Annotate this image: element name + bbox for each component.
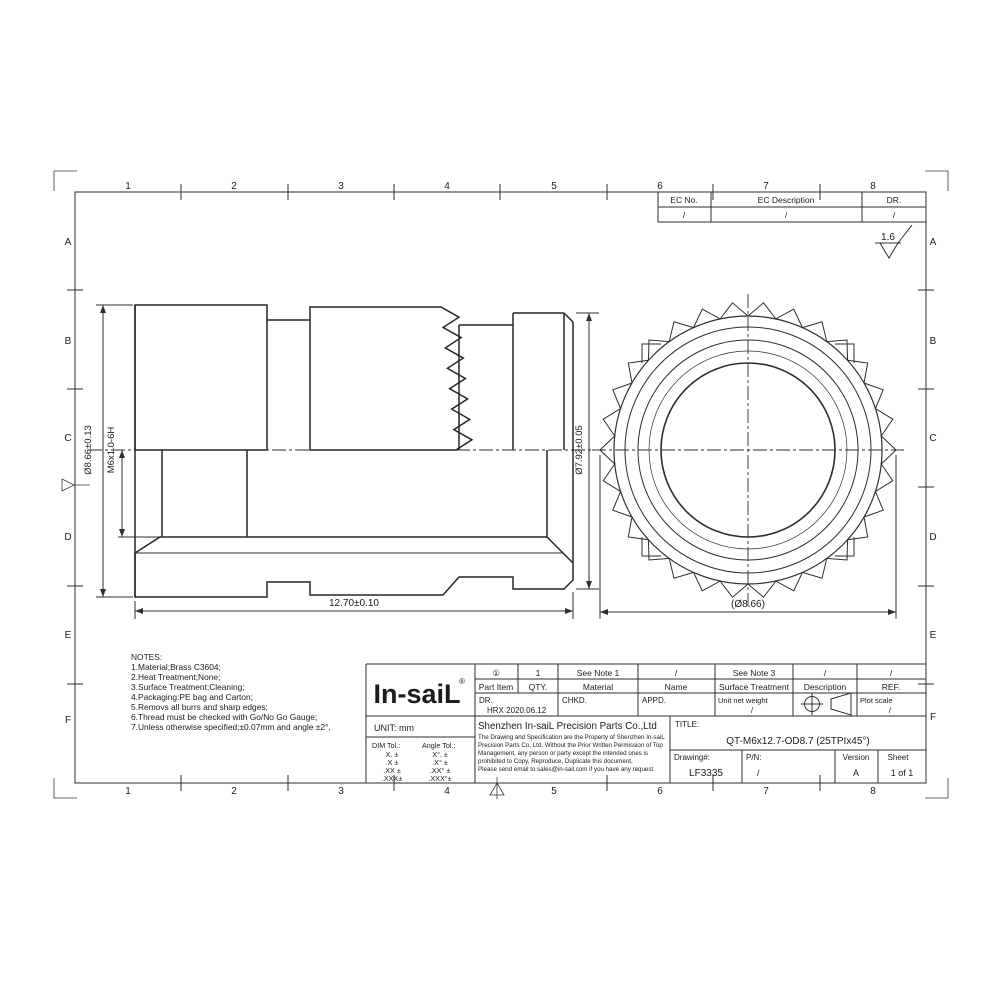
ref-value: / [890,668,893,678]
row-label: C [64,433,71,444]
crosshair-icon [801,693,823,715]
row-label: D [64,532,71,543]
col-label: 6 [657,786,663,797]
note-line: 2.Heat Treatment;None; [131,672,220,682]
cone-frustum-icon [831,693,851,715]
col-label: 4 [444,786,450,797]
ec-description-value: / [785,210,788,220]
note-line: 7.Unless otherwise specified;±0.07mm and… [131,722,331,732]
col-label: 3 [338,181,344,192]
dr-value: HRX 2020.06.12 [487,706,547,715]
name-value: / [675,668,678,678]
weight-value: / [751,706,754,715]
note-line: 5.Removs all burrs and sharp edges; [131,702,268,712]
dim-length: 12.70±0.10 [135,592,573,619]
col-label: 1 [125,181,131,192]
col-label: 8 [870,181,876,192]
dim-tol-label: DIM Tol.: [372,741,400,750]
surface-treatment-label: Surface Treatment [719,682,790,692]
knurl-block [310,307,472,450]
row-label: E [65,630,72,641]
company-name: Shenzhen In-saiL Precision Parts Co.,Ltd [478,721,657,732]
note-line: 3.Surface Treatment;Cleaning; [131,682,245,692]
plot-scale-value: / [889,706,892,715]
col-label: 6 [657,181,663,192]
version-label: Version [843,753,870,762]
ec-no-header: EC No. [670,195,697,205]
front-view: (Ø8.66) [592,294,904,619]
col-label: 4 [444,181,450,192]
col-label: 7 [763,181,769,192]
projection-symbols [801,693,851,715]
tolerance-table: DIM Tol.: Angle Tol.: X. ± .X ± .XX ± .X… [372,741,455,783]
row-label: B [65,336,72,347]
note-line: 6.Thread must be checked with Go/No Go G… [131,712,317,722]
row-label: D [929,532,936,543]
ec-description-header: EC Description [758,195,815,205]
note-line: 4.Packaging:PE bag and Carton; [131,692,253,702]
disclaimer-line: prohibited to Copy, Reproduce, Duplicate… [478,758,633,765]
disclaimer-line: Precision Parts Co, Ltd, Without the Pri… [478,742,663,749]
base-section-hatch [135,537,573,597]
drawing-number-label: Drawing#: [674,753,710,762]
dim-thread-text: M6x1.0-6H [106,427,117,474]
disclaimer-line: Management, any person or party except t… [478,750,648,757]
col-label: 5 [551,181,557,192]
company-disclaimer: The Drawing and Specification are the Pr… [478,734,665,773]
registered-mark-icon: ® [459,677,465,686]
corner-mark-top-left [54,171,77,191]
corner-mark-bottom-left [54,778,77,798]
part-item-value: ① [492,668,500,678]
dim-flange: Ø7.92±0.05 [574,313,599,589]
dr-label: DR. [479,696,493,705]
dim-length-text: 12.70±0.10 [329,598,379,609]
material-value: See Note 1 [577,668,620,678]
title-label: TITLE: [675,720,699,729]
dim-flange-text: Ø7.92±0.05 [574,425,585,475]
qty-label: QTY. [529,682,548,692]
col-label: 8 [870,786,876,797]
notes-title: NOTES: [131,652,162,662]
appd-label: APPD. [642,696,666,705]
disclaimer-line: Please send email to sales@in-sail.com i… [478,766,655,773]
notes: NOTES: 1.Material;Brass C3604; 2.Heat Tr… [131,652,331,732]
drawing-number-row: Drawing#: LF3335 P/N: / Version A Sheet … [674,753,913,779]
col-label: 5 [551,786,557,797]
version-value: A [853,768,859,778]
company-logo: In-saiL [373,679,460,709]
thread-section-hatch [135,305,267,450]
dim-tol-row: .XXX± [382,774,402,783]
dim-od-ref-text: (Ø8.66) [731,599,765,610]
dim-thread: M6x1.0-6H [106,427,125,537]
ec-no-value: / [683,210,686,220]
sheet-label: Sheet [888,753,910,762]
pn-value: / [757,768,760,778]
col-label: 2 [231,181,237,192]
ref-label: REF. [882,682,900,692]
drawing-number-value: LF3335 [689,768,723,779]
row-label: B [930,336,937,347]
row-label: A [930,237,937,248]
sheet-value: 1 of 1 [891,768,914,778]
title-block-values: ① 1 See Note 1 / See Note 3 / / [492,668,893,678]
flange-outline [459,313,573,450]
weight-label: Unit net weight [718,696,769,705]
row-label: F [930,712,936,723]
part-item-label: Part Item [479,682,513,692]
row-label: C [929,433,936,444]
title-value: QT-M6x12.7-OD8.7 (25TPIx45°) [726,736,870,747]
plot-scale-label: Plot scale [860,696,893,705]
title-block: In-saiL ® ① 1 See Note 1 / See Note 3 / … [366,664,926,783]
col-label: 1 [125,786,131,797]
col-label: 2 [231,786,237,797]
disclaimer-line: The Drawing and Specification are the Pr… [478,734,665,741]
note-line: 1.Material;Brass C3604; [131,662,221,672]
description-label: Description [804,682,847,692]
pn-label: P/N: [746,753,762,762]
ec-dr-value: / [893,210,896,220]
ec-dr-header: DR. [887,195,902,205]
row-label: F [65,715,71,726]
chkd-label: CHKD. [562,696,587,705]
angle-tol-label: Angle Tol.: [422,741,455,750]
unit-label: UNIT: mm [374,723,414,733]
corner-mark-bottom-right [925,778,948,798]
side-view: Ø8.66±0.13 M6x1.0-6H Ø7.92±0.05 12.70±0.… [83,305,606,619]
row-label: A [65,237,72,248]
material-label: Material [583,682,613,692]
name-label: Name [665,682,688,692]
row-label: E [930,630,937,641]
col-label: 7 [763,786,769,797]
dim-od-text: Ø8.66±0.13 [83,425,94,475]
roughness-symbol: 1.6 [875,225,912,258]
corner-mark-top-right [925,171,948,191]
qty-value: 1 [536,668,541,678]
surface-treatment-value: See Note 3 [733,668,776,678]
drawing-sheet: 1 2 3 4 5 6 7 8 1 2 3 4 5 6 7 8 A B C D … [0,0,1001,1001]
title-block-labels: Part Item QTY. Material Name Surface Tre… [479,682,900,692]
col-label: 3 [338,786,344,797]
angle-tol-row: .XXX°± [428,774,451,783]
ec-table: EC No. EC Description DR. / / / [658,192,926,222]
description-value: / [824,668,827,678]
roughness-value: 1.6 [881,232,895,243]
